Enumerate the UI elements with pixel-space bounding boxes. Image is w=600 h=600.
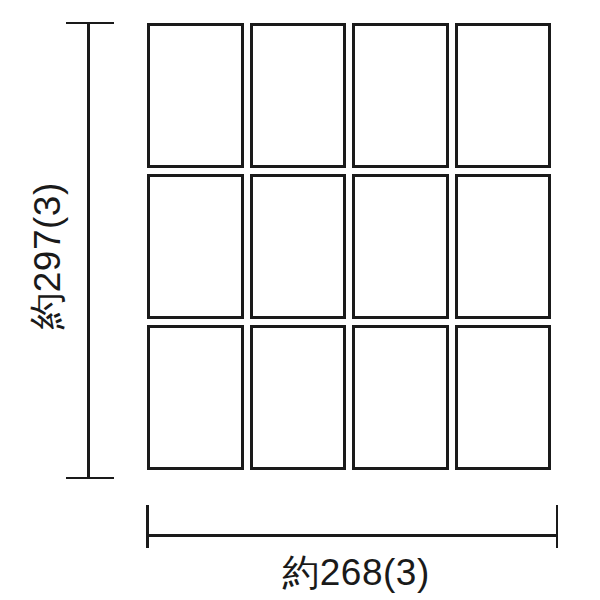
height-dimension-top-tick: [66, 22, 114, 25]
tile: [455, 174, 552, 319]
tile: [455, 325, 552, 470]
tile-grid: [147, 23, 551, 470]
tile: [147, 174, 244, 319]
tile: [352, 174, 449, 319]
tile: [250, 174, 347, 319]
tile: [455, 23, 552, 168]
tile: [352, 23, 449, 168]
tile: [250, 23, 347, 168]
tile: [250, 325, 347, 470]
width-dimension-label: 約268(3): [236, 551, 476, 595]
tile: [352, 325, 449, 470]
diagram-canvas: 約297(3) 約268(3): [0, 0, 600, 600]
tile: [147, 23, 244, 168]
width-dimension-right-tick: [556, 505, 559, 548]
width-dimension-line: [146, 534, 558, 537]
height-dimension-bottom-tick: [66, 477, 114, 480]
height-dimension-line: [87, 23, 90, 478]
width-dimension-left-tick: [146, 505, 149, 548]
height-dimension-label: 約297(3): [26, 146, 70, 366]
tile: [147, 325, 244, 470]
